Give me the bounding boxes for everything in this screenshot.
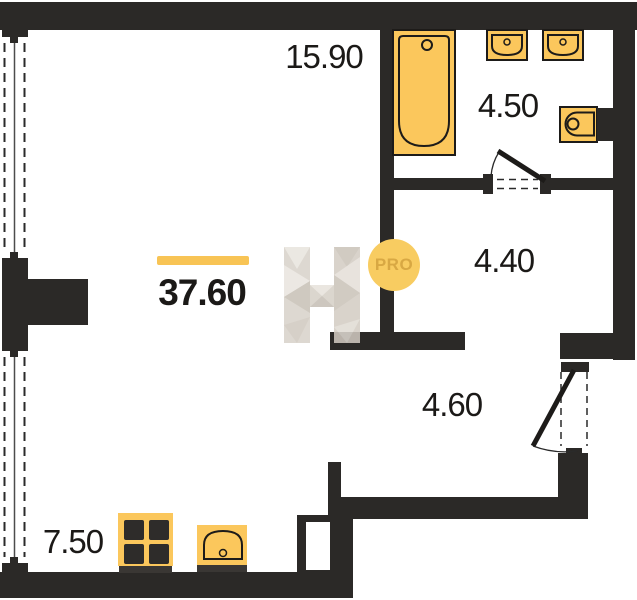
selected-area-highlight-line xyxy=(157,256,249,265)
washbasin-icon xyxy=(543,30,583,60)
area-label-top-room: 15.90 xyxy=(285,38,363,76)
area-label-kitchen: 7.50 xyxy=(43,523,103,561)
area-label-hall: 4.40 xyxy=(474,242,534,280)
area-label-living-room: 37.60 xyxy=(158,272,246,314)
bathtub-icon xyxy=(393,30,455,155)
pro-watermark-badge: PRO xyxy=(368,239,420,291)
floor-plan: PRO 37.60 15.90 4.50 4.40 4.60 7.50 xyxy=(0,0,637,600)
toilet-icon xyxy=(560,107,614,142)
kitchen-sink-icon xyxy=(197,525,247,572)
pro-watermark-label: PRO xyxy=(375,255,413,275)
window-upper-left-icon xyxy=(5,43,25,252)
washbasin-icon xyxy=(487,30,527,60)
area-label-corridor: 4.60 xyxy=(422,386,482,424)
entry-door-icon xyxy=(533,370,587,452)
stove-icon xyxy=(118,513,173,573)
window-lower-left-icon xyxy=(5,357,25,557)
area-label-bathroom: 4.50 xyxy=(478,87,538,125)
plan-symbols-layer xyxy=(0,0,637,600)
h-logo-watermark-icon xyxy=(284,247,360,343)
bathroom-door-icon xyxy=(491,151,545,189)
